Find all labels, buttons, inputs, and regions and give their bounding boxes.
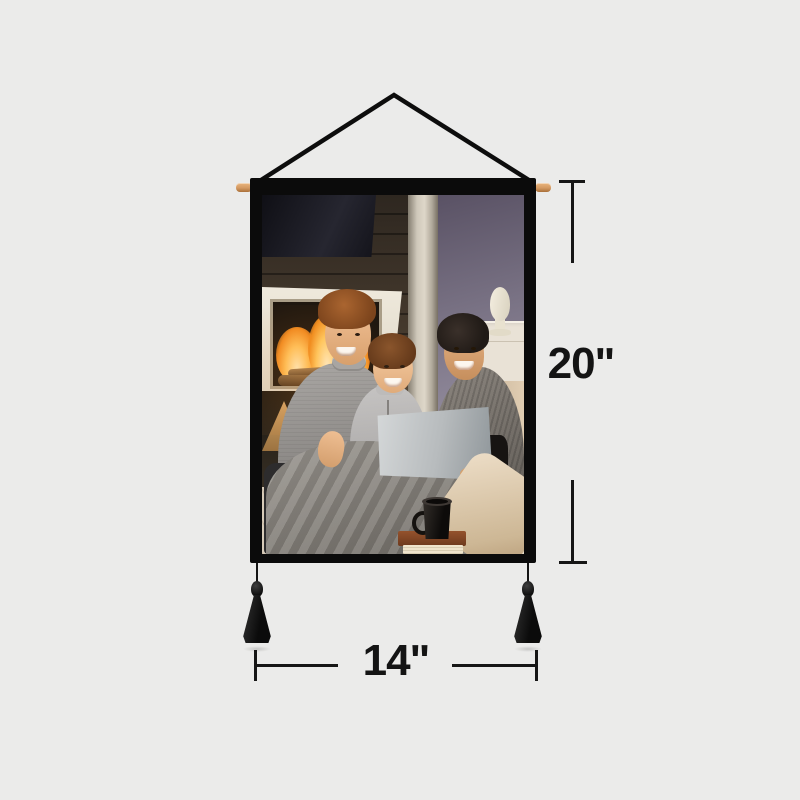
photo-mother-hair: [437, 313, 489, 353]
tassel-cone: [242, 595, 272, 643]
photo-boy-eye: [400, 365, 405, 368]
width-dimension-left-line: [256, 664, 338, 667]
photo-father-eye: [355, 333, 360, 336]
height-dimension-upper-line: [571, 182, 574, 263]
height-dimension-lower-line: [571, 480, 574, 563]
tassel-knob: [251, 581, 263, 597]
width-dimension-right-cap: [535, 650, 538, 681]
height-dimension-label: 20": [548, 339, 615, 389]
printed-family-photo: [262, 195, 524, 554]
photo-mannequin-bust: [490, 287, 510, 321]
photo-book-pages: [403, 545, 463, 554]
height-dimension-bottom-cap: [559, 561, 587, 564]
tassel-shadow: [243, 646, 271, 652]
tassel-left: [240, 563, 274, 653]
width-dimension-right-line: [452, 664, 535, 667]
photo-tv-screen: [262, 195, 376, 257]
photo-mother-eye: [471, 347, 476, 350]
photo-black-mug: [422, 501, 452, 539]
photo-father-hair: [318, 289, 376, 329]
photo-boy-eye: [384, 365, 389, 368]
product-mockup-scene: 20" 14": [0, 0, 800, 800]
tassel-right: [511, 563, 545, 653]
tapestry-banner: [250, 178, 536, 563]
photo-mug-rim-inner: [426, 499, 448, 504]
tassel-cone: [513, 595, 543, 643]
photo-father-eye: [337, 333, 342, 336]
photo-mannequin-base: [489, 329, 511, 336]
width-dimension-label: 14": [363, 636, 430, 686]
dowel-right-end: [535, 183, 551, 192]
tassel-knob: [522, 581, 534, 597]
photo-mother-eye: [454, 347, 459, 350]
photo-boy-hair: [368, 333, 416, 369]
